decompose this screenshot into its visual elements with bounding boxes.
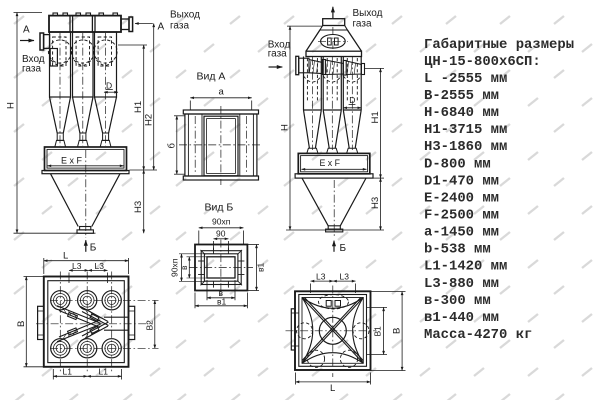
svg-text:б: б [166,143,177,149]
svg-text:Габаритные размеры: Габаритные размеры [424,36,574,53]
svg-text:Н1: Н1 [370,111,381,123]
svg-text:Е-2400 мм: Е-2400 мм [424,190,499,206]
svg-text:Е х F: Е х F [320,158,341,168]
svg-text:Н: Н [6,102,17,109]
svg-text:газа: газа [22,64,41,75]
svg-text:в1-440 мм: в1-440 мм [424,310,499,326]
svg-text:L1: L1 [99,367,109,377]
svg-text:L3: L3 [340,271,350,281]
svg-text:Выход: Выход [353,8,383,19]
svg-text:в1: в1 [217,296,227,306]
svg-text:Масса-4270 кг: Масса-4270 кг [424,327,532,343]
svg-text:Б: Б [90,243,97,254]
svg-text:В1: В1 [373,326,383,337]
svg-text:L3: L3 [95,261,105,271]
svg-text:в: в [179,265,189,270]
svg-text:L1: L1 [63,367,73,377]
svg-text:D: D [106,80,112,90]
svg-text:L3: L3 [72,261,82,271]
svg-text:газа: газа [170,21,189,32]
svg-text:В: В [16,321,27,327]
svg-text:в1: в1 [256,262,266,272]
svg-text:L1-1420 мм: L1-1420 мм [424,259,507,275]
svg-text:Е х F: Е х F [61,156,83,166]
svg-text:А: А [23,24,30,35]
svg-text:b-538 мм: b-538 мм [424,242,491,258]
svg-text:D: D [349,95,355,105]
svg-text:L: L [330,383,335,394]
svg-text:D1-470 мм: D1-470 мм [424,173,499,189]
svg-text:D-800 мм: D-800 мм [424,156,491,172]
svg-text:в-300 мм: в-300 мм [424,293,491,309]
svg-text:90хп: 90хп [212,216,231,226]
svg-text:а: а [219,87,225,98]
svg-text:Выход: Выход [170,10,200,21]
svg-text:L3: L3 [316,271,326,281]
svg-text:Н3-1860 мм: Н3-1860 мм [424,139,507,155]
svg-text:Вид Б: Вид Б [205,202,234,214]
svg-text:В: В [392,328,403,334]
svg-text:L3-880 мм: L3-880 мм [424,276,499,292]
svg-text:L: L [63,251,68,262]
svg-text:90: 90 [216,229,226,239]
svg-text:Н: Н [280,124,291,131]
svg-text:Н1-3715 мм: Н1-3715 мм [424,122,507,138]
svg-text:Н-6840 мм: Н-6840 мм [424,105,499,121]
svg-text:Н3: Н3 [133,201,144,213]
svg-text:Вид А: Вид А [197,71,226,83]
svg-text:F-2500 мм: F-2500 мм [424,208,499,224]
svg-text:L -2555 мм: L -2555 мм [424,71,507,87]
svg-text:В-2555 мм: В-2555 мм [424,88,499,104]
svg-text:газа: газа [353,19,372,30]
svg-text:газа: газа [268,49,287,60]
svg-text:Н3: Н3 [370,197,381,209]
svg-text:Б: Б [340,243,347,254]
svg-text:Н1: Н1 [133,101,144,113]
svg-text:90хп: 90хп [170,258,180,277]
svg-text:А: А [158,22,165,33]
svg-text:В2: В2 [145,320,155,331]
svg-text:а-1450 мм: а-1450 мм [424,225,499,241]
svg-text:ЦН-15-800х6СП:: ЦН-15-800х6СП: [424,54,541,70]
svg-text:Н2: Н2 [144,114,155,126]
